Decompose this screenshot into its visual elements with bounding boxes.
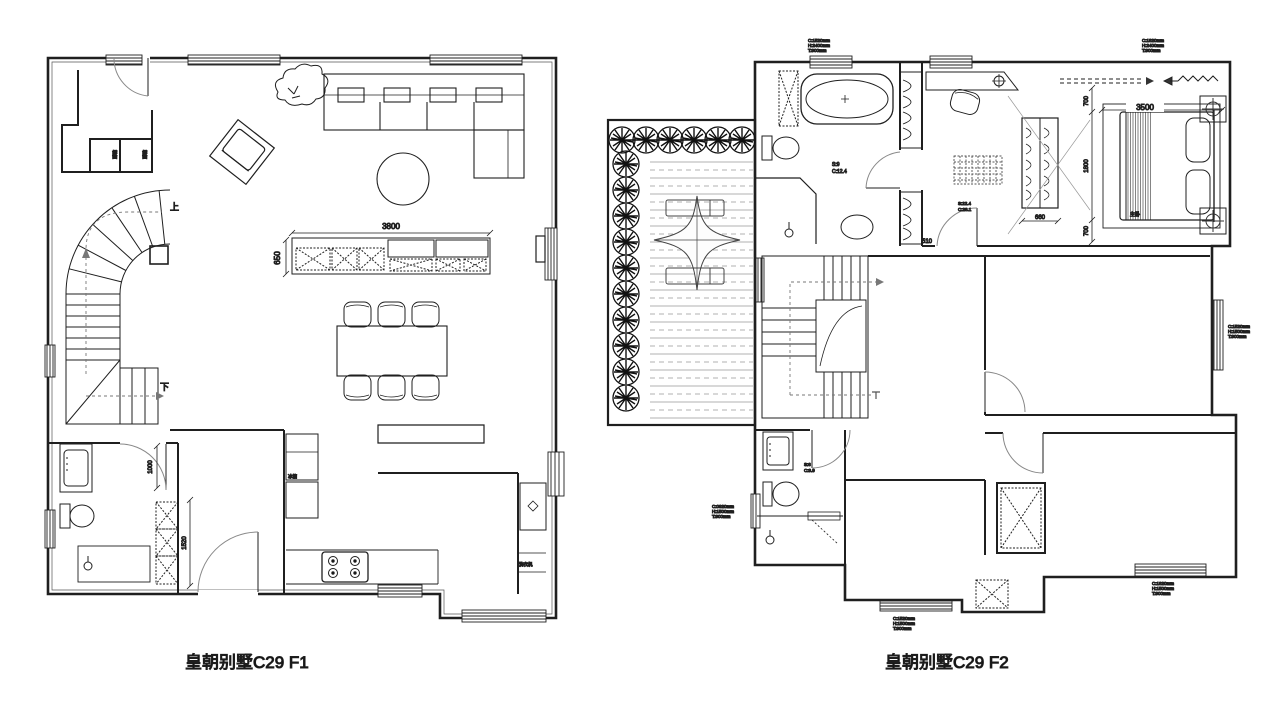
f1-outer-walls — [48, 58, 556, 618]
f2-staircase — [762, 256, 884, 418]
f2-annotations: C:1520mm H:2400mm T:900mm C:1820mm H:240… — [712, 38, 1250, 631]
f1-kitchen: 冰箱 洗衣机 — [286, 434, 546, 584]
svg-text:3500: 3500 — [1136, 103, 1154, 112]
dim-wardrobe: 660 — [1019, 215, 1061, 224]
svg-text:T:900mm: T:900mm — [808, 48, 827, 53]
svg-text:1000: 1000 — [148, 460, 154, 474]
area-bath-bottom-2: C:9.9 — [804, 468, 815, 473]
dim-tv-width: 3800 — [289, 222, 493, 236]
stair-up-label: 上 — [170, 202, 179, 212]
bedroom-chair-icon — [949, 88, 982, 116]
curtain-rail-icon — [1060, 76, 1218, 85]
area-master-1: S:22.4 — [958, 201, 972, 206]
svg-text:T:900mm: T:900mm — [1228, 334, 1247, 339]
f1-windows — [45, 55, 564, 622]
terrace-plants — [609, 127, 755, 411]
fridge-label: 冰箱 — [288, 473, 297, 480]
rug-icon — [954, 156, 1002, 184]
svg-text:3800: 3800 — [382, 222, 400, 231]
coffee-table-icon — [377, 153, 429, 205]
stair-down-label: 下 — [160, 382, 169, 392]
toilet-icon — [763, 482, 799, 506]
annotation-a6: C:1520mm H:1500mm T:900mm — [893, 616, 915, 631]
sofa-icon — [324, 74, 524, 178]
svg-text:T:900mm: T:900mm — [1142, 48, 1161, 53]
tv-cabinet: 3800 650 — [273, 222, 493, 277]
svg-text:1800: 1800 — [1084, 159, 1090, 173]
f2-terrace — [609, 127, 755, 418]
f2-windows — [751, 56, 1223, 611]
svg-text:700: 700 — [1084, 225, 1090, 236]
area-bath-bottom-1: S:6 — [804, 462, 811, 467]
f1-entry-closet: 鞋柜 鞋柜 — [111, 150, 148, 159]
plan-caption-f1: 皇朝别墅C29 F1 — [185, 653, 309, 672]
basin-icon — [841, 215, 873, 239]
bed-icon: 主卧 — [1103, 104, 1220, 228]
dim-bedroom-door: 510 — [922, 239, 933, 245]
corner-light-icon — [992, 74, 1006, 88]
bath-cabinet-column — [156, 502, 178, 584]
annotation-a5: C:1820mm H:1500mm T:900mm — [1152, 581, 1174, 596]
armchair-icon — [210, 120, 275, 185]
stove-icon — [322, 552, 368, 582]
toilet-icon — [762, 136, 799, 160]
dining-set-icon — [337, 302, 447, 400]
f2-door-gaps — [897, 150, 925, 190]
f2-interior-walls — [755, 62, 1236, 565]
svg-text:660: 660 — [1035, 215, 1046, 221]
svg-text:700: 700 — [1084, 95, 1090, 106]
floorplan-sheet: 鞋柜 鞋柜 上 下 — [0, 0, 1280, 718]
f2-master-bathroom: S:9 C:12.4 — [755, 71, 893, 244]
area-bath-top-2: C:12.4 — [832, 169, 847, 175]
floorplan-f2: S:9 C:12.4 660 — [608, 38, 1250, 672]
f1-bathroom: 1000 1520 — [60, 443, 258, 592]
f2-lower-bathroom: S:6 C:9.9 — [757, 430, 850, 544]
closet-label-b: 鞋柜 — [141, 150, 148, 159]
utility-sink-icon — [520, 483, 546, 530]
annotation-a3: C:1520mm H:1500mm T:900mm — [1228, 324, 1250, 339]
bedroom-wardrobe-icon — [1022, 118, 1058, 208]
svg-text:T:900mm: T:900mm — [712, 514, 731, 519]
f2-master-bedroom: 660 主卧 3500 700 1800 700 — [922, 72, 1226, 246]
f1-door-gaps — [114, 54, 258, 599]
area-bath-top-1: S:9 — [832, 162, 840, 168]
closet-label-a: 鞋柜 — [111, 150, 118, 159]
dim-tv-depth: 650 — [273, 237, 289, 277]
f1-staircase: 上 下 — [66, 190, 179, 424]
floorplan-f1: 鞋柜 鞋柜 上 下 — [45, 54, 564, 672]
floorplan-drawing: 鞋柜 鞋柜 上 下 — [0, 0, 1280, 718]
toilet-icon — [60, 504, 94, 528]
annotation-a4: C:0920mm H:1500mm T:900mm — [712, 504, 734, 519]
plan-caption-f2: 皇朝别墅C29 F2 — [885, 653, 1009, 672]
svg-text:650: 650 — [273, 251, 282, 265]
dim-bath-door: 1000 — [148, 443, 160, 491]
bathtub-icon — [801, 74, 893, 124]
dim-bath-cabinet: 1520 — [182, 497, 193, 589]
washer-label: 洗衣机 — [519, 561, 533, 568]
f2-lower-bedroom — [976, 433, 1043, 608]
svg-text:1520: 1520 — [182, 536, 188, 550]
master-room-label: 主卧 — [1130, 211, 1140, 218]
svg-text:T:900mm: T:900mm — [1152, 591, 1171, 596]
annotation-a2: C:1820mm H:2400mm T:900mm — [1142, 38, 1164, 53]
svg-text:T:900mm: T:900mm — [893, 626, 912, 631]
tree-icon — [275, 64, 327, 105]
annotation-a1: C:1520mm H:2400mm T:900mm — [808, 38, 830, 53]
area-master-2: C:28.1 — [958, 207, 972, 212]
f2-middle-room — [985, 372, 1025, 412]
shower-icon — [78, 546, 150, 582]
